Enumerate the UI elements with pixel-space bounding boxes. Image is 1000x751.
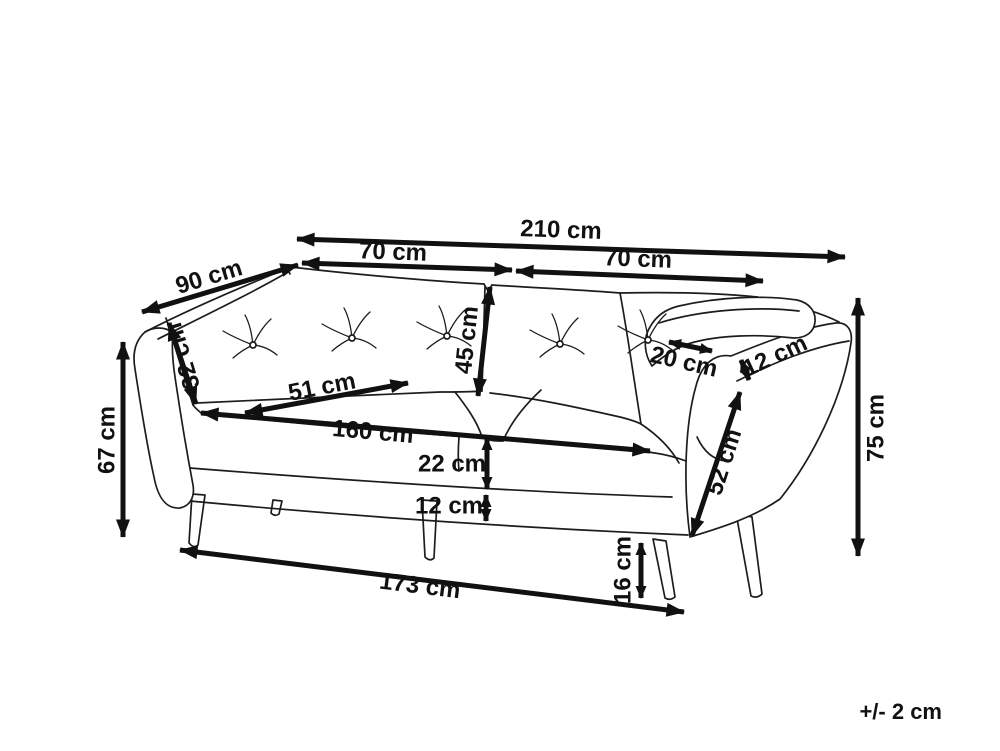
tolerance-note: +/- 2 cm <box>859 699 942 725</box>
dimension-label-backrest-height: 45 cm <box>450 305 484 376</box>
dimension-label-seat-width: 160 cm <box>331 415 414 449</box>
dimension-label-total-width: 210 cm <box>520 215 602 245</box>
dimension-label-leg-height: 16 cm <box>610 536 637 604</box>
sofa-leg <box>653 539 675 599</box>
dimension-label-base-width: 173 cm <box>378 568 462 605</box>
cushion-tuft <box>530 314 584 357</box>
sofa-leg <box>736 513 762 597</box>
dimension-total-height: 75 cm <box>858 298 890 556</box>
dimension-label-seat-section-left: 70 cm <box>359 237 428 266</box>
dimension-depth: 90 cm <box>142 254 298 312</box>
dimension-label-armrest-top-width: 20 cm <box>648 341 720 383</box>
dimension-armrest-top-width: 20 cm <box>648 341 720 383</box>
right-back-cushion-edge <box>620 293 641 424</box>
dimension-label-armrest-height-left: 67 cm <box>94 406 121 474</box>
cushion-tuft <box>322 308 376 351</box>
dimension-arrow-seat-width <box>201 413 650 451</box>
dimension-seat-depth: 51 cm <box>245 367 408 413</box>
right-back-cushion-bottom <box>490 393 641 424</box>
cushion-tuft <box>223 315 277 358</box>
diagram-canvas: 210 cm70 cm70 cm90 cm32 cm45 cm51 cm160 … <box>0 0 1000 751</box>
dimension-seat-cushion-height: 22 cm <box>418 438 487 489</box>
dimension-label-total-height: 75 cm <box>863 394 890 462</box>
dimension-armrest-height-left: 67 cm <box>94 342 124 537</box>
cushion-tufts <box>223 306 672 358</box>
dimension-leg-height: 16 cm <box>610 536 642 604</box>
dimension-label-seat-section-right: 70 cm <box>604 244 673 273</box>
left-armrest <box>134 267 291 508</box>
dimension-label-seat-cushion-height: 22 cm <box>418 451 486 478</box>
dimension-label-base-height: 12 cm <box>415 493 483 520</box>
dimension-base-height: 12 cm <box>415 493 486 522</box>
dimension-seat-width: 160 cm <box>201 413 650 451</box>
sofa-dimension-diagram: 210 cm70 cm70 cm90 cm32 cm45 cm51 cm160 … <box>0 0 1000 751</box>
